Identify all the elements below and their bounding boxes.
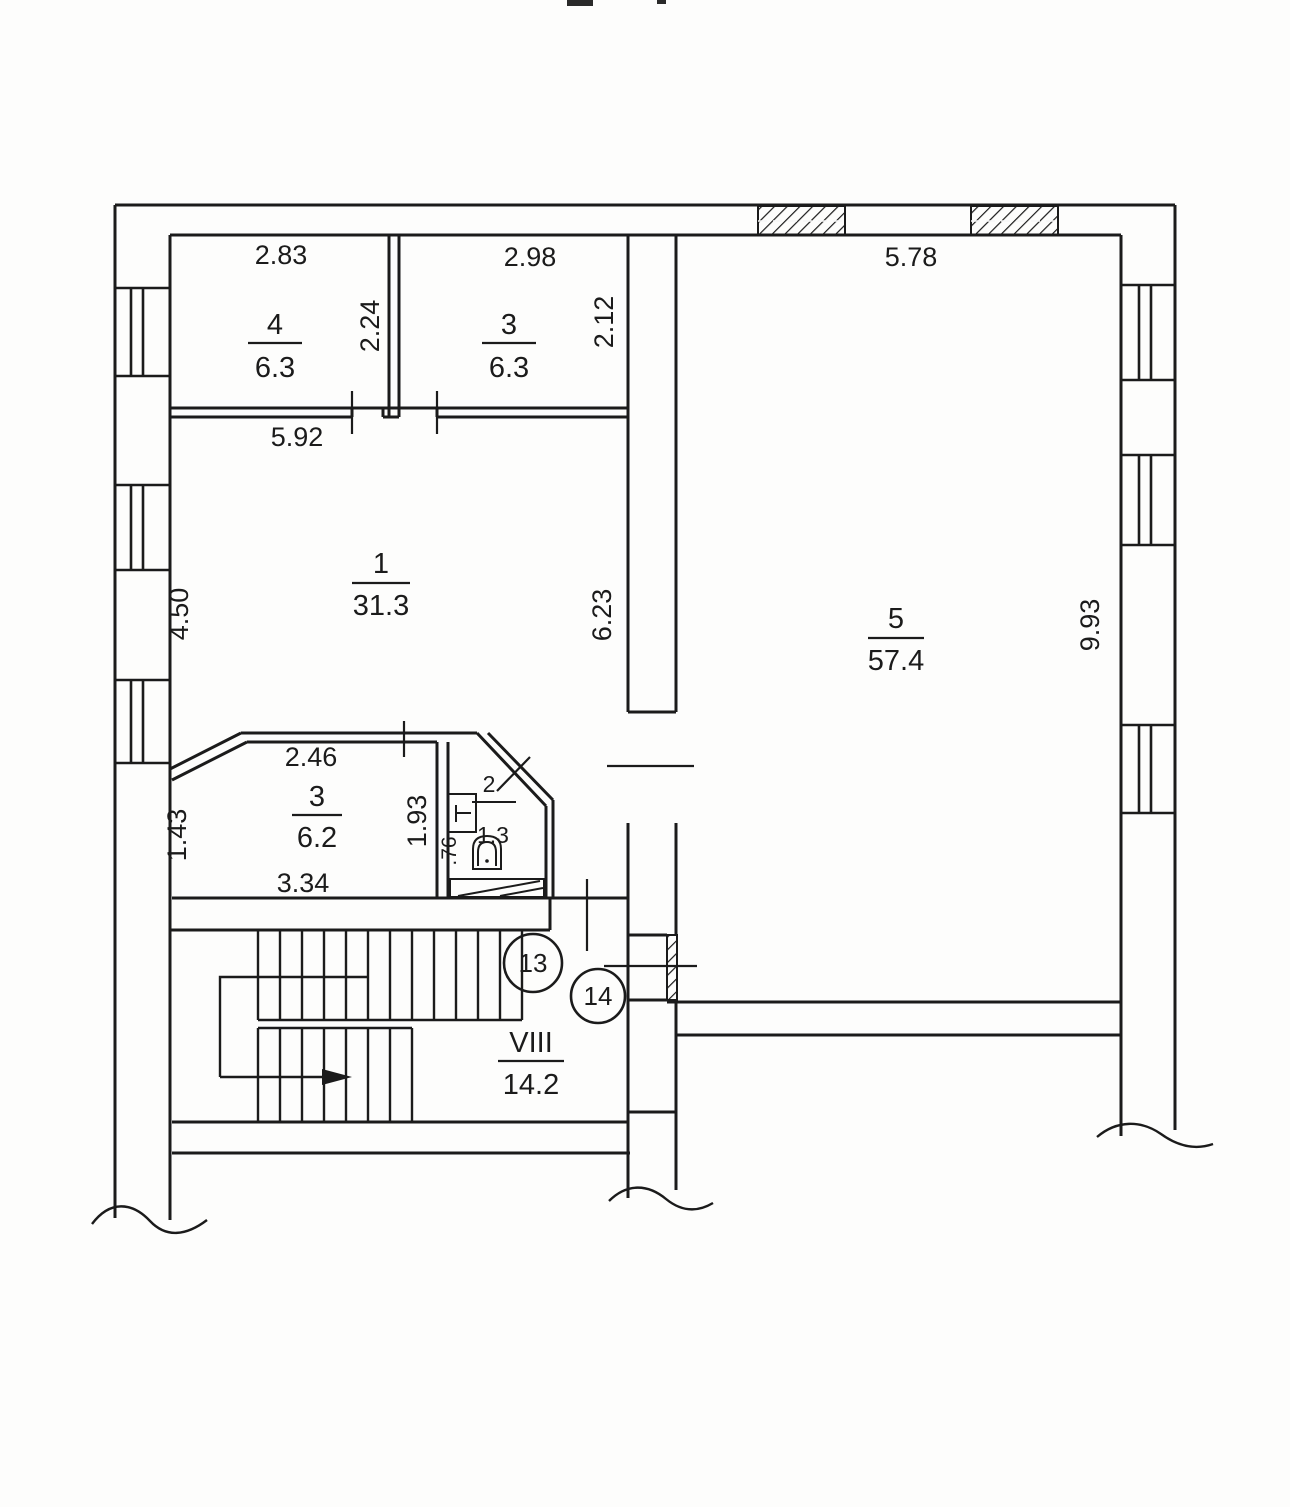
- window-icon: [115, 288, 170, 376]
- window-icon: [115, 680, 170, 763]
- dim-room5-width: 5.78: [885, 242, 938, 272]
- shower-tray-diagonals: [458, 881, 543, 896]
- partition-room4-room3: [389, 235, 399, 417]
- door-14-label: 14: [584, 981, 613, 1011]
- stair-upper-flight-treads: [258, 930, 522, 1020]
- room-3-bottom-label: 3 6.2: [292, 781, 342, 854]
- room5-bottom-wall: [667, 1002, 1121, 1035]
- dim-bathroom-depth: 1.93: [402, 795, 432, 848]
- room-5-label: 5 57.4: [868, 603, 924, 677]
- room-3-bottom-area: 6.2: [297, 822, 337, 854]
- room-5-number: 5: [888, 603, 904, 635]
- stairhall-bottom-walls: [172, 1122, 630, 1153]
- window-icon: [1121, 455, 1175, 545]
- room-1-number: 1: [373, 548, 389, 580]
- break-line-bottom-center: [609, 1188, 713, 1210]
- dim-room5-depth: 9.93: [1075, 599, 1105, 652]
- room-3-bottom-number: 3: [309, 781, 325, 813]
- door14-cavity-caps: [628, 935, 667, 1000]
- toilet-drain-dot: [485, 859, 489, 863]
- door-13-label: 13: [519, 948, 548, 978]
- room-3-top-number: 3: [501, 309, 517, 341]
- middle-wall-upper: [628, 235, 676, 712]
- sink-tap-icon: [456, 805, 471, 822]
- room-4-label: 4 6.3: [248, 309, 302, 384]
- windows-left-wall: [115, 288, 170, 763]
- chamfer-wall-left: [170, 733, 247, 780]
- dim-room1-left-depth: 4.50: [164, 588, 194, 641]
- scan-artifact: [567, 0, 666, 6]
- floor-plan-drawing: 13 14 4 6.3 3 6.3 1 31.3 5 57.4 3 6.2: [0, 0, 1290, 1507]
- bathroom-right-wall: [546, 800, 553, 898]
- room-4-area: 6.3: [255, 352, 295, 384]
- lower-rooms-top-wall: [241, 733, 477, 742]
- dim-room3-top-width: 2.98: [504, 242, 557, 272]
- dim-room4-depth: 2.24: [355, 300, 385, 353]
- room-4-number: 4: [267, 309, 283, 341]
- stair-hall-number: VIII: [509, 1027, 553, 1059]
- dim-room3-bottom-width: 3.34: [277, 868, 330, 898]
- bathroom-partition: [437, 742, 448, 898]
- dim-room3-bottom-left: 1.43: [162, 809, 192, 862]
- window-icon: [1121, 285, 1175, 380]
- stair-hall-label: VIII 14.2: [498, 1027, 564, 1101]
- dim-bathroom-width: .76: [438, 836, 461, 865]
- dim-room1-top-width: 5.92: [271, 422, 324, 452]
- dim-room3-bottom-top: 2.46: [285, 742, 338, 772]
- dim-room3-top-depth: 2.12: [589, 296, 619, 349]
- staircase: [220, 930, 522, 1122]
- dimension-labels: 2.83 2.98 2.24 2.12 5.92 4.50 6.23 5.78 …: [162, 240, 1105, 898]
- stair-arrow-icon: [322, 1069, 352, 1085]
- window-icon: [1121, 725, 1175, 813]
- floor-plan-page: 13 14 4 6.3 3 6.3 1 31.3 5 57.4 3 6.2: [0, 0, 1290, 1507]
- dim-room1-right-depth: 6.23: [587, 589, 617, 642]
- hatched-wall-sections: [758, 206, 1058, 235]
- room-3-top-label: 3 6.3: [482, 309, 536, 384]
- stairhall-top-wall: [170, 898, 550, 930]
- hatched-wall-section: [758, 206, 845, 235]
- bathroom-area: 1.3: [477, 822, 509, 848]
- break-line-bottom-right: [1097, 1124, 1213, 1147]
- room-5-area: 57.4: [868, 645, 924, 677]
- dim-room4-width: 2.83: [255, 240, 308, 270]
- window-icon: [115, 485, 170, 570]
- hatched-wall-pier: [667, 935, 677, 1000]
- break-lines: [92, 1124, 1213, 1233]
- room-3-top-area: 6.3: [489, 352, 529, 384]
- bathroom-number: 2: [483, 771, 496, 797]
- bathroom-label: 2 1.3: [472, 771, 516, 848]
- stair-hall-area: 14.2: [503, 1069, 559, 1101]
- windows-right-wall: [1121, 285, 1175, 813]
- break-line-bottom-left: [92, 1206, 207, 1233]
- room-1-area: 31.3: [353, 590, 409, 622]
- interior-walls: [170, 235, 1121, 1198]
- room-1-label: 1 31.3: [352, 548, 410, 622]
- hatched-wall-section: [971, 206, 1058, 235]
